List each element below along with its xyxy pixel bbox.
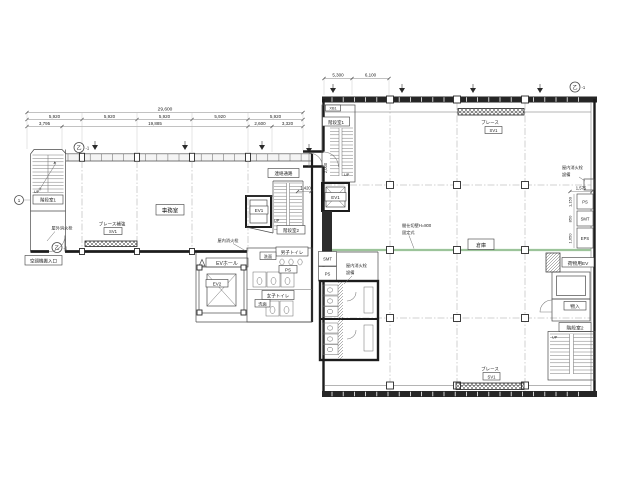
- dim-bay-1: 5,920: [49, 114, 61, 119]
- brace-left: ブレース補強 SV1: [85, 221, 137, 247]
- svg-text:-1: -1: [582, 85, 586, 90]
- dim-1575: 1,575: [576, 186, 587, 191]
- corridor-label: 連絡通路: [268, 169, 299, 178]
- svg-text:SV1: SV1: [488, 374, 497, 379]
- dim-850: 850: [568, 215, 573, 222]
- up-label: UP: [344, 173, 350, 177]
- dim-sub-4: 3,320: [282, 121, 294, 126]
- stair2-left-label: 階段室2: [277, 226, 305, 235]
- svg-text:事務室: 事務室: [162, 206, 179, 214]
- svg-text:洗面: 洗面: [264, 253, 272, 260]
- svg-text:EPS: EPS: [581, 236, 590, 241]
- svg-text:EV1: EV1: [255, 208, 264, 213]
- svg-text:倉庫: 倉庫: [476, 242, 486, 249]
- level-mark-icon: [399, 84, 405, 93]
- ps-label-left: PS: [279, 266, 297, 274]
- toilet-block-left: 男子トイレ 洗面 PS 女子トイレ 洗面: [247, 247, 312, 322]
- freight-ev-label: 荷物用EV: [562, 258, 594, 268]
- wash-label-2: 洗面: [255, 300, 270, 308]
- brace-bottom: ブレース SV1: [456, 366, 524, 390]
- svg-text:EVホール: EVホール: [216, 261, 238, 267]
- left-building: 29,600 5,920 5,920 5,920 5,920 5,920 3,7…: [15, 107, 324, 323]
- brace-note: ブレース: [481, 366, 499, 372]
- svg-text:SV1: SV1: [109, 229, 118, 234]
- svg-text:EV1: EV1: [331, 195, 340, 200]
- grid-bubble-otsu-1: 乙 -1: [74, 143, 90, 153]
- east-service-stack: 屋内消火栓 設備 1,575 PS SMT EPS 1,150 850: [540, 164, 594, 321]
- svg-text:屋内消火栓: 屋内消火栓: [346, 262, 368, 269]
- wash-label-1: 洗面: [260, 252, 276, 260]
- svg-text:PS: PS: [325, 272, 331, 277]
- stair1-right-label: 階段室1: [323, 117, 350, 126]
- ev1-left-label: EV1: [250, 206, 268, 214]
- office-label: 事務室: [156, 205, 184, 216]
- dim-1150: 1,150: [568, 196, 573, 207]
- svg-text:SV1: SV1: [490, 128, 499, 133]
- north-window-wall: [66, 153, 312, 161]
- dim-sub-1: 3,795: [39, 121, 51, 126]
- brace-reinf-note: ブレース補強: [99, 221, 126, 228]
- ps-room-label: PS: [319, 267, 337, 282]
- stair1-left-label: 階段室1: [33, 195, 63, 204]
- svg-text:固定式: 固定式: [402, 229, 415, 236]
- svg-text:SMT: SMT: [581, 217, 590, 222]
- eps-shaft-label: EPS: [577, 228, 593, 248]
- svg-text:女子トイレ: 女子トイレ: [267, 292, 290, 299]
- svg-text:屋内消火栓: 屋内消火栓: [562, 164, 584, 171]
- right-building: 5,300 6,100 乙 -1: [319, 73, 598, 398]
- level-mark-icon: [330, 84, 336, 93]
- ps-shaft-label: PS: [577, 194, 593, 209]
- svg-text:連絡通路: 連絡通路: [275, 170, 293, 177]
- hvac-entry-label: 空調機搬入口: [25, 256, 62, 266]
- stairwell-2-left: UP 階段室2 1,420: [273, 181, 313, 234]
- svg-text:設備: 設備: [562, 171, 570, 178]
- level-mark-icon: [182, 141, 188, 150]
- dim-1650: 1,650: [568, 233, 573, 244]
- svg-text:階段室1: 階段室1: [328, 119, 344, 126]
- brace-top: ブレース SV1: [458, 109, 524, 134]
- grid-bubble-1: 1: [15, 196, 31, 205]
- svg-text:乙: 乙: [76, 145, 81, 152]
- svg-text:階段室2: 階段室2: [566, 325, 583, 332]
- dim-bay-2: 5,920: [104, 114, 116, 119]
- dim-right-1: 5,300: [332, 73, 344, 78]
- svg-text:EV2: EV2: [213, 281, 222, 286]
- dim-1420: 1,420: [300, 186, 311, 191]
- columns: [387, 96, 529, 389]
- dim-bay-3: 5,920: [159, 114, 171, 119]
- svg-text:洗面: 洗面: [258, 300, 266, 307]
- svg-text:階段室2: 階段室2: [283, 227, 299, 234]
- level-mark-icon: [92, 141, 98, 150]
- toilet-block-right: SMT PS: [319, 252, 379, 361]
- up-label: UP: [552, 336, 558, 340]
- svg-text:男子トイレ: 男子トイレ: [281, 249, 304, 256]
- svg-text:物入: 物入: [570, 303, 580, 310]
- ev1-right-label: EV1: [325, 193, 346, 202]
- floor-plan-page: 29,600 5,920 5,920 5,920 5,920 5,920 3,7…: [0, 0, 640, 480]
- level-mark-icon: [259, 141, 265, 150]
- svg-text:SMT: SMT: [323, 257, 332, 262]
- svg-text:階段室1: 階段室1: [40, 197, 56, 204]
- freight-ev-shaft-wall: [546, 253, 560, 272]
- sv1-label-top: SV1: [485, 127, 502, 134]
- grid-bubble-otsu-1c: 乙 -1: [570, 82, 586, 92]
- warehouse-label: 倉庫: [468, 239, 494, 250]
- level-mark-icon: [470, 84, 476, 93]
- up-label: UP: [274, 219, 280, 223]
- dim-bay-4: 5,920: [214, 114, 226, 119]
- shaft-wall: [322, 211, 332, 252]
- storage-label: 物入: [564, 302, 586, 311]
- dim-bay-5: 5,920: [270, 114, 282, 119]
- svg-text:PS: PS: [285, 267, 291, 272]
- xb-label: XB1: [326, 105, 341, 111]
- ev1-left: EV1: [246, 196, 273, 233]
- svg-text:-1: -1: [86, 146, 90, 151]
- svg-text:空調機搬入口: 空調機搬入口: [30, 258, 57, 265]
- mens-toilet-label: 男子トイレ: [276, 247, 308, 256]
- dim-total: 29,600: [158, 107, 173, 113]
- womens-toilet-label: 女子トイレ: [262, 291, 294, 300]
- floor-plan-canvas: 29,600 5,920 5,920 5,920 5,920 5,920 3,7…: [0, 0, 640, 480]
- dim-sub-3: 2,600: [254, 121, 266, 126]
- level-mark-icon: [537, 84, 543, 93]
- partition-note: 間仕切壁H=800 固定式: [402, 222, 432, 249]
- stair2-right-label: 階段室2: [559, 323, 591, 332]
- sv1-label: SV1: [104, 228, 122, 235]
- svg-text:乙: 乙: [572, 84, 577, 91]
- svg-text:荷物用EV: 荷物用EV: [568, 260, 590, 267]
- smt-shaft-label: SMT: [577, 211, 593, 226]
- svg-text:設備: 設備: [346, 269, 354, 276]
- smt-room-label: SMT: [319, 252, 337, 267]
- svg-text:間仕切壁H=800: 間仕切壁H=800: [402, 222, 432, 229]
- stairwell-1-right: XB1 階段室1 UP 2,000: [322, 105, 355, 182]
- stairwell-1-left: UP 階段室1: [33, 155, 64, 204]
- svg-text:XB1: XB1: [329, 107, 336, 111]
- svg-text:屋内消火栓: 屋内消火栓: [218, 237, 240, 244]
- svg-text:PS: PS: [582, 200, 588, 205]
- dim-2000: 2,000: [323, 162, 328, 173]
- ev-hall: EVホール EV2: [196, 253, 312, 322]
- indoor-hydrant-left: 屋内消火栓: [218, 237, 245, 251]
- dim-right-2: 6,100: [365, 73, 377, 78]
- up-label: UP: [34, 190, 40, 194]
- ev2-label: EV2: [206, 280, 228, 288]
- stairwell-2-right: 階段室2 UP: [548, 323, 595, 381]
- brace-note: ブレース: [481, 119, 499, 125]
- dim-sub-2: 19,885: [148, 121, 162, 126]
- sv1-label-bottom: SV1: [483, 373, 500, 381]
- ev1-right: EV1: [322, 183, 349, 252]
- outdoor-hydrant-note: 屋外消火栓: [52, 225, 74, 232]
